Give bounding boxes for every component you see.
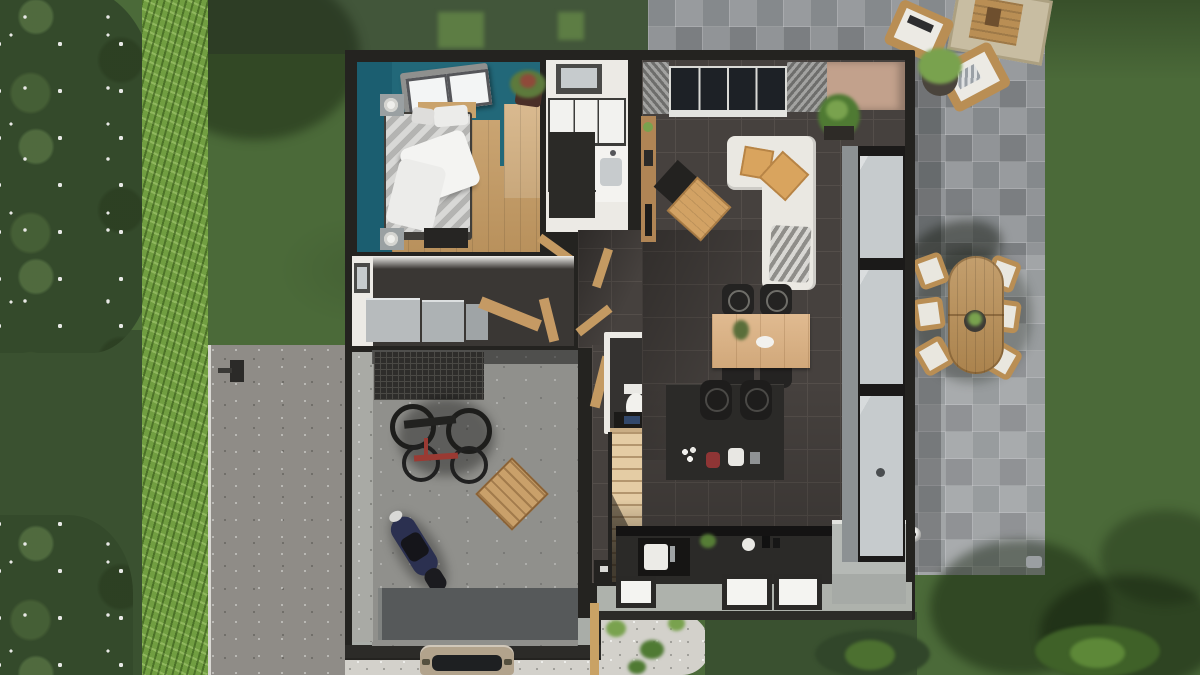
kitchen-backsplash bbox=[616, 526, 840, 536]
roof-glazing bbox=[669, 66, 787, 112]
mailbox-arm bbox=[218, 368, 232, 373]
glazing-sill bbox=[669, 110, 787, 117]
bush-cluster bbox=[1070, 638, 1125, 668]
mailbox-post bbox=[230, 360, 244, 382]
window-glass bbox=[779, 579, 817, 605]
table-centerpiece bbox=[733, 320, 749, 340]
counter-bottle bbox=[773, 538, 780, 548]
shutter-panel bbox=[643, 62, 669, 114]
window-glass bbox=[561, 68, 597, 88]
wooden-edge-strip bbox=[590, 603, 599, 675]
window-sill-bench bbox=[842, 146, 858, 562]
bed-pillow bbox=[433, 105, 469, 128]
shrub bbox=[606, 620, 626, 637]
car-windshield bbox=[432, 655, 502, 671]
counter-bottle bbox=[762, 536, 770, 548]
island-white-pot bbox=[728, 448, 744, 466]
exterior-edge bbox=[597, 611, 912, 620]
console-plant bbox=[643, 122, 653, 132]
window-glass bbox=[357, 267, 367, 289]
sofa-throw-blanket bbox=[769, 225, 812, 283]
bathroom-sink bbox=[600, 158, 622, 186]
lawn-light-patch bbox=[438, 12, 484, 48]
dresser bbox=[424, 228, 468, 248]
washer bbox=[366, 298, 420, 342]
dining-chair bbox=[760, 284, 792, 316]
shrub bbox=[640, 640, 664, 659]
table-bowl bbox=[756, 336, 774, 348]
bush-cluster bbox=[845, 640, 895, 670]
chair-cushion bbox=[919, 341, 948, 371]
lawn-light-patch bbox=[558, 12, 584, 40]
garage-door-apron bbox=[378, 588, 578, 640]
window-glass bbox=[727, 579, 767, 605]
stool-arm bbox=[745, 388, 769, 412]
tree-shadow bbox=[1045, 0, 1200, 80]
utility-window-frame bbox=[354, 263, 370, 293]
flowering-tree-canopy bbox=[0, 0, 156, 353]
gray-cabinet-front bbox=[832, 574, 906, 604]
window-reflection bbox=[876, 468, 885, 477]
car-mirror bbox=[504, 659, 512, 665]
bathroom-dark-floor bbox=[549, 132, 595, 218]
chair-cushion bbox=[918, 257, 944, 285]
bedroom-plant-flowers bbox=[520, 74, 536, 88]
basement-window-frame bbox=[774, 574, 822, 610]
corner-planter bbox=[824, 126, 854, 140]
parked-car bbox=[420, 645, 514, 675]
driveway bbox=[206, 345, 346, 675]
planter-plant bbox=[918, 48, 962, 84]
bicycle-wheel bbox=[402, 444, 440, 482]
watering-can bbox=[1026, 556, 1042, 568]
hedge-strip bbox=[142, 0, 208, 675]
island-flowers bbox=[680, 446, 700, 466]
console-lamp bbox=[645, 204, 652, 236]
stool-arm bbox=[705, 388, 729, 412]
car-mirror bbox=[422, 659, 430, 665]
utility-lit-wall bbox=[373, 256, 574, 269]
shrub bbox=[628, 660, 646, 674]
bar-stool bbox=[700, 380, 732, 420]
island-red-pot bbox=[706, 452, 720, 468]
dryer bbox=[422, 300, 464, 342]
chair-cushion bbox=[894, 8, 944, 54]
bedside-lamp bbox=[384, 98, 398, 112]
counter-appliance bbox=[742, 538, 755, 551]
stair-rail bbox=[608, 432, 612, 582]
chair-back bbox=[728, 290, 750, 312]
kitchen-sink bbox=[644, 544, 668, 570]
dining-chair bbox=[722, 284, 754, 316]
chair-cushion bbox=[918, 302, 941, 327]
wc-mat-motif bbox=[624, 416, 640, 424]
bicycle-frame-red bbox=[424, 438, 428, 458]
window-pane bbox=[860, 270, 903, 384]
counter-plant bbox=[700, 534, 716, 548]
table-plant bbox=[968, 312, 982, 326]
wardrobe bbox=[504, 104, 540, 198]
flowering-tree-canopy bbox=[0, 515, 133, 675]
console-decor bbox=[644, 150, 653, 166]
basement-window-frame bbox=[722, 574, 772, 610]
bathroom-window-frame bbox=[556, 64, 602, 94]
bedside-lamp bbox=[384, 232, 398, 246]
corner-plant bbox=[826, 100, 848, 120]
window-glass bbox=[621, 581, 651, 603]
patio-chair bbox=[912, 296, 946, 332]
floor-plan-scene bbox=[0, 0, 1200, 675]
island-decor bbox=[750, 452, 760, 464]
bar-stool bbox=[740, 380, 772, 420]
storage-rack bbox=[374, 352, 484, 400]
window-pane bbox=[860, 156, 903, 258]
kitchen-faucet bbox=[670, 546, 675, 562]
faucet bbox=[610, 150, 616, 156]
chair-back bbox=[766, 290, 788, 312]
bed-pillow bbox=[411, 107, 435, 126]
garage-wall-left bbox=[352, 352, 373, 642]
basement-window-frame bbox=[616, 576, 656, 608]
